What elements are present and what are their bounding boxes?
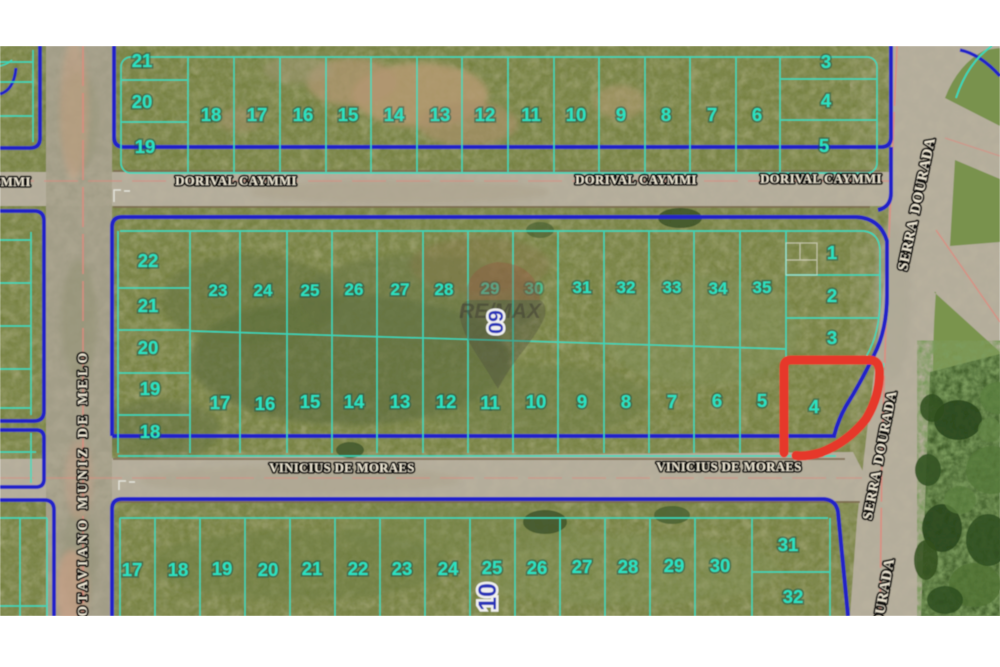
svg-text:3: 3: [821, 51, 831, 72]
svg-text:10: 10: [566, 104, 587, 125]
svg-text:35: 35: [753, 278, 772, 297]
svg-text:23: 23: [392, 558, 413, 579]
svg-text:20: 20: [138, 337, 159, 358]
svg-text:28: 28: [618, 556, 639, 577]
svg-text:11: 11: [521, 104, 541, 125]
svg-text:20: 20: [132, 91, 153, 112]
svg-text:10: 10: [526, 391, 547, 412]
svg-text:4: 4: [821, 90, 832, 111]
svg-text:7: 7: [667, 391, 677, 412]
svg-text:18: 18: [168, 559, 189, 580]
svg-text:15: 15: [300, 391, 321, 412]
svg-text:27: 27: [572, 556, 593, 577]
svg-text:25: 25: [482, 557, 503, 578]
svg-text:9: 9: [616, 104, 626, 125]
svg-text:5: 5: [819, 135, 829, 156]
svg-text:25: 25: [301, 281, 320, 300]
svg-text:20: 20: [258, 559, 279, 580]
svg-text:12: 12: [475, 104, 496, 125]
svg-text:9: 9: [577, 391, 587, 412]
svg-text:DORIVAL CAYMMI: DORIVAL CAYMMI: [175, 174, 297, 188]
svg-text:32: 32: [617, 278, 636, 297]
svg-text:14: 14: [384, 104, 405, 125]
svg-text:8: 8: [661, 104, 671, 125]
svg-text:2: 2: [827, 285, 837, 306]
svg-text:28: 28: [435, 280, 454, 299]
svg-text:7: 7: [707, 104, 717, 125]
svg-text:24: 24: [438, 558, 459, 579]
svg-text:19: 19: [135, 136, 156, 157]
svg-text:3: 3: [827, 327, 837, 348]
svg-text:OTAVIANO MUNIZ DE MELO: OTAVIANO MUNIZ DE MELO: [75, 349, 90, 616]
svg-text:26: 26: [345, 280, 364, 299]
svg-text:17: 17: [210, 392, 231, 413]
svg-text:1: 1: [827, 242, 837, 263]
svg-text:21: 21: [138, 295, 159, 316]
svg-text:31: 31: [573, 278, 592, 297]
svg-text:32: 32: [783, 586, 804, 607]
svg-text:26: 26: [527, 557, 548, 578]
svg-text:31: 31: [778, 534, 799, 555]
svg-text:18: 18: [140, 421, 161, 442]
svg-text:6: 6: [752, 104, 762, 125]
svg-text:16: 16: [255, 393, 276, 414]
svg-text:15: 15: [338, 104, 359, 125]
svg-text:DORIVAL CAYMMI: DORIVAL CAYMMI: [760, 172, 882, 186]
svg-text:13: 13: [390, 391, 411, 412]
svg-text:DORIVAL CAYMMI: DORIVAL CAYMMI: [0, 175, 31, 189]
svg-text:16: 16: [293, 104, 314, 125]
svg-text:23: 23: [209, 281, 228, 300]
svg-text:14: 14: [344, 391, 365, 412]
svg-text:27: 27: [391, 280, 410, 299]
svg-text:29: 29: [664, 555, 685, 576]
svg-text:13: 13: [430, 104, 451, 125]
svg-text:24: 24: [254, 281, 273, 300]
svg-text:12: 12: [436, 391, 457, 412]
svg-text:18: 18: [201, 104, 222, 125]
svg-text:VINICIUS DE MORAES: VINICIUS DE MORAES: [269, 461, 414, 475]
svg-text:21: 21: [132, 50, 153, 71]
svg-text:34: 34: [709, 279, 728, 298]
svg-text:22: 22: [138, 250, 159, 271]
svg-text:17: 17: [247, 104, 268, 125]
svg-text:17: 17: [122, 559, 143, 580]
svg-text:19: 19: [140, 378, 161, 399]
svg-text:21: 21: [302, 558, 323, 579]
svg-text:10: 10: [474, 583, 502, 611]
svg-text:30: 30: [710, 555, 731, 576]
svg-text:VINICIUS DE MORAES: VINICIUS DE MORAES: [656, 460, 801, 474]
svg-text:8: 8: [621, 391, 631, 412]
svg-text:DORIVAL CAYMMI: DORIVAL CAYMMI: [575, 173, 697, 187]
svg-text:22: 22: [348, 558, 369, 579]
svg-text:33: 33: [663, 278, 682, 297]
svg-text:4: 4: [809, 396, 820, 417]
svg-text:11: 11: [480, 392, 500, 413]
svg-text:19: 19: [212, 558, 233, 579]
svg-text:09: 09: [484, 310, 508, 334]
svg-text:6: 6: [712, 390, 722, 411]
svg-text:5: 5: [757, 390, 767, 411]
